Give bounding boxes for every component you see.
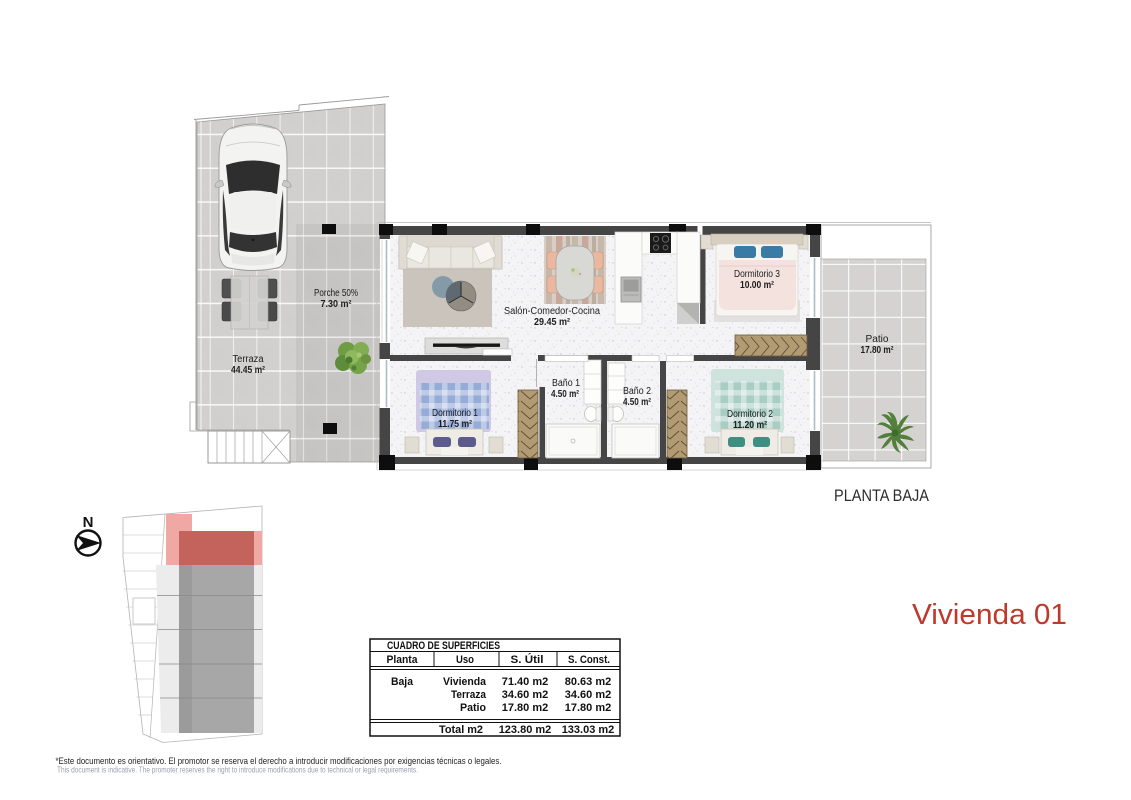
svg-text:80.63 m2: 80.63 m2	[565, 676, 611, 688]
svg-text:Salón-Comedor-Cocina: Salón-Comedor-Cocina	[504, 306, 600, 317]
svg-text:Terraza: Terraza	[233, 354, 264, 365]
svg-text:34.60 m2: 34.60 m2	[565, 689, 611, 701]
svg-text:11.75 m²: 11.75 m²	[438, 419, 473, 430]
svg-text:Total m2: Total m2	[439, 724, 483, 736]
svg-text:123.80 m2: 123.80 m2	[499, 724, 552, 736]
svg-text:44.45 m²: 44.45 m²	[231, 365, 266, 376]
svg-text:71.40 m2: 71.40 m2	[502, 676, 548, 688]
svg-text:N: N	[83, 514, 94, 531]
svg-text:34.60 m2: 34.60 m2	[502, 689, 548, 701]
svg-text:10.00 m²: 10.00 m²	[740, 280, 775, 291]
svg-text:Patio: Patio	[866, 334, 889, 345]
svg-text:Vivienda 01: Vivienda 01	[912, 599, 1067, 631]
svg-text:17.80 m2: 17.80 m2	[502, 702, 548, 714]
svg-text:S. Útil: S. Útil	[511, 653, 544, 666]
svg-text:Dormitorio 3: Dormitorio 3	[734, 269, 780, 280]
svg-text:29.45 m²: 29.45 m²	[534, 317, 571, 328]
svg-text:Dormitorio 2: Dormitorio 2	[727, 409, 773, 420]
svg-text:This document is indicative. T: This document is indicative. The promote…	[57, 765, 418, 775]
svg-text:17.80 m²: 17.80 m²	[861, 345, 895, 356]
svg-text:Terraza: Terraza	[451, 689, 487, 701]
svg-text:Dormitorio 1: Dormitorio 1	[432, 408, 478, 419]
svg-text:Baño 2: Baño 2	[623, 386, 651, 397]
svg-text:17.80 m2: 17.80 m2	[565, 702, 611, 714]
svg-text:4.50 m²: 4.50 m²	[623, 397, 652, 408]
svg-text:4.50 m²: 4.50 m²	[551, 389, 580, 400]
svg-text:S. Const.: S. Const.	[568, 654, 610, 666]
svg-text:Baja: Baja	[391, 676, 414, 688]
svg-text:Planta: Planta	[387, 654, 419, 666]
svg-text:Vivienda: Vivienda	[443, 676, 487, 688]
svg-text:11.20 m²: 11.20 m²	[733, 420, 768, 431]
svg-text:133.03 m2: 133.03 m2	[562, 724, 615, 736]
svg-text:Patio: Patio	[460, 702, 486, 714]
svg-text:PLANTA BAJA: PLANTA BAJA	[834, 487, 929, 505]
svg-text:Porche 50%: Porche 50%	[314, 288, 358, 299]
svg-text:Baño 1: Baño 1	[552, 378, 580, 389]
svg-text:Uso: Uso	[456, 654, 474, 666]
svg-text:CUADRO DE SUPERFICIES: CUADRO DE SUPERFICIES	[387, 640, 500, 652]
svg-text:7.30 m²: 7.30 m²	[321, 299, 353, 310]
